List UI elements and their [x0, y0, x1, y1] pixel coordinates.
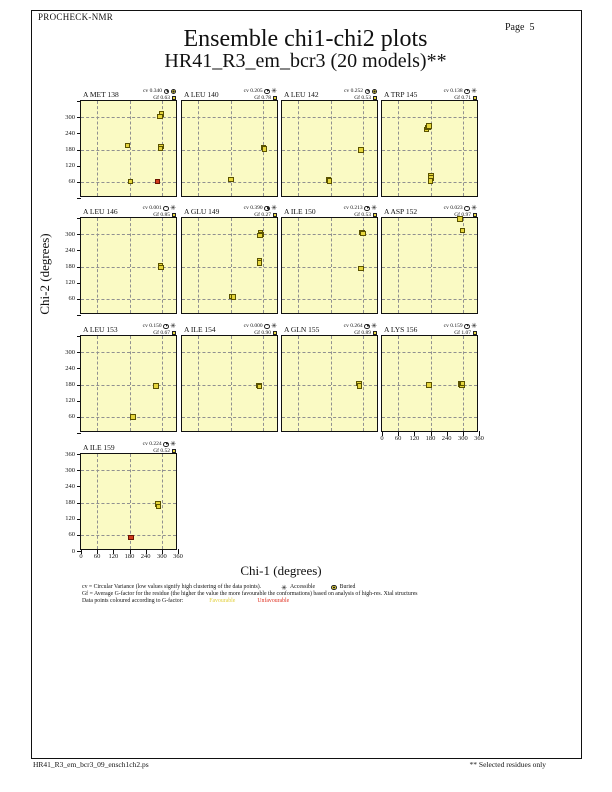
data-point [457, 216, 463, 222]
y-tick [77, 267, 82, 268]
residue-name: A ILE 150 [284, 207, 316, 216]
data-point [157, 114, 163, 120]
residue-name: A LYS 156 [384, 325, 417, 334]
gf-square-icon [373, 96, 378, 101]
data-point [158, 265, 164, 271]
accessible-icon: ✳ [471, 323, 477, 329]
y-tick [77, 101, 82, 102]
data-point [231, 294, 237, 300]
gridline-vertical [263, 336, 264, 431]
legend-line-cv: cv = Circular Variance (low values signi… [82, 584, 552, 591]
circular-variance-pie-icon [164, 89, 170, 95]
gf-line: Gf 0.89 [344, 330, 377, 337]
gridline-horizontal [182, 117, 277, 118]
gf-square-icon [473, 331, 478, 336]
y-tick [77, 117, 82, 118]
residue-plot: A LEU 153cv 0.150✳Gf 0.6730024018012060 [80, 335, 177, 432]
gridline-vertical [463, 101, 464, 196]
y-tick-label: 360 [55, 451, 75, 458]
y-tick-label: 180 [55, 499, 75, 506]
gf-square-icon [273, 213, 278, 218]
y-tick-label: 120 [55, 162, 75, 169]
gridline-horizontal [81, 352, 176, 353]
y-tick [77, 150, 82, 151]
favourable-label: Favourable [209, 598, 235, 605]
data-point [130, 414, 136, 420]
data-point [128, 535, 134, 541]
data-point [228, 177, 234, 183]
accessible-label: Accessible [290, 584, 315, 591]
x-tick-label: 0 [73, 553, 89, 560]
data-point [460, 381, 466, 387]
data-point [327, 178, 333, 184]
footer-note: ** Selected residues only [31, 760, 546, 769]
circular-variance-pie-icon [464, 206, 470, 212]
y-tick [77, 433, 82, 434]
data-point [128, 179, 134, 185]
circular-variance-pie-icon [163, 324, 169, 330]
gridline-vertical [331, 218, 332, 313]
residue-name: A GLU 149 [184, 207, 219, 216]
residue-name: A MET 138 [83, 90, 119, 99]
gf-line: Gf 0.67 [143, 330, 176, 337]
residue-plot: A ILE 150cv 0.213✳Gf 0.53 [281, 217, 378, 314]
y-tick-label: 0 [55, 548, 75, 555]
y-tick-label: 120 [55, 397, 75, 404]
y-tick [77, 503, 82, 504]
data-point [358, 147, 364, 153]
x-tick-label: 180 [122, 553, 138, 560]
y-tick [77, 336, 82, 337]
residue-plot: A LYS 156cv 0.159✳Gf 1.07060120180240300… [381, 335, 478, 432]
residue-name: A LEU 140 [184, 90, 219, 99]
legend-colour-text: Data points coloured according to G-fact… [82, 598, 183, 605]
y-tick [77, 166, 82, 167]
y-tick-label: 300 [55, 349, 75, 356]
y-tick-label: 60 [55, 295, 75, 302]
buried-icon [171, 89, 177, 95]
residue-name: A GLN 155 [284, 325, 319, 334]
x-tick-label: 180 [423, 435, 439, 442]
gf-square-icon [172, 213, 177, 218]
gf-line: Gf 0.78 [244, 95, 277, 102]
residue-plot: A ILE 159cv 0.224✳Gf 0.52360300240180120… [80, 453, 177, 550]
cv-gf-header: cv 0.000✳Gf 0.90 [244, 323, 277, 336]
data-point [262, 146, 268, 152]
y-tick [77, 519, 82, 520]
residue-plot: A GLN 155cv 0.264✳Gf 0.89 [281, 335, 378, 432]
y-tick-label: 60 [55, 413, 75, 420]
gf-square-icon [172, 331, 177, 336]
residue-plot: A TRP 145cv 0.138✳Gf 0.71 [381, 100, 478, 197]
cv-gf-header: cv 0.264✳Gf 0.89 [344, 323, 377, 336]
page-title: Ensemble chi1-chi2 plots [31, 26, 580, 53]
accessible-icon: ✳ [271, 88, 277, 94]
data-point [153, 383, 159, 389]
gridline-vertical [231, 336, 232, 431]
circular-variance-pie-icon [364, 206, 370, 212]
legend-gf-text: Gf = Average G-factor for the residue (t… [82, 591, 418, 598]
data-point [158, 146, 164, 152]
gf-square-icon [373, 213, 378, 218]
gridline-horizontal [382, 117, 477, 118]
gf-line: Gf 0.90 [244, 330, 277, 337]
cv-gf-header: cv 0.340Gf 0.63 [143, 88, 176, 101]
cv-gf-header: cv 0.213✳Gf 0.53 [344, 205, 377, 218]
x-tick-label: 60 [390, 435, 406, 442]
circular-variance-pie-icon [464, 324, 470, 330]
gf-square-icon [473, 96, 478, 101]
y-tick-label: 300 [55, 231, 75, 238]
data-point [155, 179, 161, 185]
gf-line: Gf 0.52 [143, 448, 176, 455]
cv-gf-header: cv 0.159✳Gf 1.07 [444, 323, 477, 336]
y-tick-label: 60 [55, 178, 75, 185]
gridline-vertical [130, 218, 131, 313]
accessible-icon: ✳ [371, 205, 377, 211]
y-tick [77, 470, 82, 471]
y-tick [77, 401, 82, 402]
data-point [156, 504, 162, 510]
gridline-vertical [431, 218, 432, 313]
residue-plot: A LEU 142cv 0.252Gf 0.53 [281, 100, 378, 197]
residue-name: A TRP 145 [384, 90, 417, 99]
gf-square-icon [273, 96, 278, 101]
accessible-icon: ✳ [371, 323, 377, 329]
y-tick-label: 300 [55, 467, 75, 474]
cv-gf-header: cv 0.150✳Gf 0.67 [143, 323, 176, 336]
residue-plot: A LEU 140cv 0.205✳Gf 0.78 [181, 100, 278, 197]
y-tick [77, 234, 82, 235]
residue-name: A ILE 154 [184, 325, 216, 334]
data-point [257, 233, 263, 239]
data-point [257, 384, 263, 390]
y-tick-label: 120 [55, 515, 75, 522]
gf-square-icon [273, 331, 278, 336]
residue-name: A ASP 152 [384, 207, 417, 216]
gridline-vertical [162, 336, 163, 431]
cv-gf-header: cv 0.205✳Gf 0.78 [244, 88, 277, 101]
residue-name: A ILE 159 [83, 443, 115, 452]
gridline-horizontal [382, 234, 477, 235]
residue-plot: A ASP 152cv 0.023✳Gf 0.97 [381, 217, 478, 314]
cv-gf-header: cv 0.390✳Gf 0.27 [244, 205, 277, 218]
gf-line: Gf 0.71 [444, 95, 477, 102]
residue-name: A LEU 142 [284, 90, 319, 99]
y-tick [77, 299, 82, 300]
accessible-icon: ✳ [170, 205, 176, 211]
y-tick-label: 240 [55, 130, 75, 137]
y-tick [77, 133, 82, 134]
y-tick-label: 180 [55, 146, 75, 153]
accessible-icon: ✳ [271, 205, 277, 211]
y-tick [77, 250, 82, 251]
accessible-icon: ✳ [271, 323, 277, 329]
x-tick-label: 360 [471, 435, 487, 442]
legend-line-gf: Gf = Average G-factor for the residue (t… [82, 591, 552, 598]
page-subtitle: HR41_R3_em_bcr3 (20 models)** [31, 50, 580, 73]
gf-line: Gf 0.53 [344, 212, 377, 219]
y-tick-label: 180 [55, 263, 75, 270]
procheck-page: { "page_header": { "app_name": "PROCHECK… [0, 0, 612, 792]
cv-gf-header: cv 0.001✳Gf 0.85 [143, 205, 176, 218]
data-point [358, 266, 364, 272]
y-tick [77, 454, 82, 455]
gf-line: Gf 1.07 [444, 330, 477, 337]
data-point [357, 383, 363, 389]
x-tick-label: 240 [439, 435, 455, 442]
accessible-icon: ✳ [281, 585, 287, 591]
buried-icon [331, 585, 337, 591]
gridline-vertical [331, 336, 332, 431]
buried-icon [372, 89, 378, 95]
circular-variance-pie-icon [163, 442, 169, 448]
cv-gf-header: cv 0.138✳Gf 0.71 [444, 88, 477, 101]
circular-variance-pie-icon [264, 206, 270, 212]
data-point [460, 228, 466, 234]
y-tick [77, 283, 82, 284]
gridline-horizontal [282, 117, 377, 118]
y-tick [77, 535, 82, 536]
circular-variance-pie-icon [364, 324, 370, 330]
data-point [426, 382, 432, 388]
y-tick [77, 385, 82, 386]
y-axis-label: Chi-2 (degrees) [37, 214, 53, 334]
x-tick-label: 60 [89, 553, 105, 560]
gf-square-icon [473, 213, 478, 218]
buried-label: Buried [340, 584, 356, 591]
data-point [426, 123, 432, 129]
data-point [125, 143, 131, 149]
gridline-horizontal [282, 352, 377, 353]
cv-gf-header: cv 0.252Gf 0.53 [344, 88, 377, 101]
gf-square-icon [172, 449, 177, 454]
y-tick-label: 60 [55, 531, 75, 538]
circular-variance-pie-icon [163, 206, 169, 212]
y-tick [77, 486, 82, 487]
accessible-icon: ✳ [170, 323, 176, 329]
residue-name: A LEU 153 [83, 325, 118, 334]
legend-line-colours: Data points coloured according to G-fact… [82, 598, 552, 605]
cv-gf-header: cv 0.224✳Gf 0.52 [143, 441, 176, 454]
y-tick [77, 182, 82, 183]
gridline-horizontal [382, 352, 477, 353]
y-tick-label: 300 [55, 114, 75, 121]
residue-plot: A LEU 146cv 0.001✳Gf 0.8530024018012060 [80, 217, 177, 314]
residue-name: A LEU 146 [83, 207, 118, 216]
legend-cv-text: cv = Circular Variance (low values signi… [82, 584, 261, 591]
residue-plot: A GLU 149cv 0.390✳Gf 0.27 [181, 217, 278, 314]
y-tick-label: 240 [55, 247, 75, 254]
y-tick-label: 240 [55, 365, 75, 372]
gf-line: Gf 0.85 [143, 212, 176, 219]
x-tick-label: 0 [374, 435, 390, 442]
x-tick-label: 120 [105, 553, 121, 560]
data-point [360, 231, 366, 237]
app-name: PROCHECK-NMR [38, 12, 113, 22]
gridline-horizontal [81, 234, 176, 235]
data-point [428, 178, 434, 184]
x-tick-label: 240 [138, 553, 154, 560]
data-point [257, 260, 263, 266]
circular-variance-pie-icon [264, 324, 270, 330]
accessible-icon: ✳ [471, 205, 477, 211]
gridline-vertical [363, 336, 364, 431]
y-tick [77, 352, 82, 353]
x-tick-label: 360 [170, 553, 186, 560]
y-tick-label: 240 [55, 483, 75, 490]
gf-line: Gf 0.27 [244, 212, 277, 219]
y-tick-label: 120 [55, 279, 75, 286]
accessible-icon: ✳ [471, 88, 477, 94]
gridline-vertical [162, 454, 163, 549]
gf-square-icon [172, 96, 177, 101]
residue-plot: A ILE 154cv 0.000✳Gf 0.90 [181, 335, 278, 432]
gf-square-icon [373, 331, 378, 336]
gridline-horizontal [182, 352, 277, 353]
x-tick-label: 300 [455, 435, 471, 442]
y-tick [77, 368, 82, 369]
gf-line: Gf 0.53 [344, 95, 377, 102]
y-tick [77, 198, 82, 199]
circular-variance-pie-icon [365, 89, 371, 95]
gf-line: Gf 0.63 [143, 95, 176, 102]
y-tick [77, 218, 82, 219]
x-axis-label: Chi-1 (degrees) [31, 563, 531, 579]
circular-variance-pie-icon [464, 89, 470, 95]
y-tick [77, 417, 82, 418]
gridline-horizontal [81, 470, 176, 471]
x-tick-label: 300 [154, 553, 170, 560]
y-tick-label: 180 [55, 381, 75, 388]
residue-plot: A MET 138cv 0.340Gf 0.6330024018012060 [80, 100, 177, 197]
unfavourable-label: Unfavourable [257, 598, 289, 605]
y-tick [77, 315, 82, 316]
x-tick-label: 120 [406, 435, 422, 442]
accessible-icon: ✳ [170, 441, 176, 447]
circular-variance-pie-icon [264, 89, 270, 95]
legend: cv = Circular Variance (low values signi… [82, 584, 552, 605]
